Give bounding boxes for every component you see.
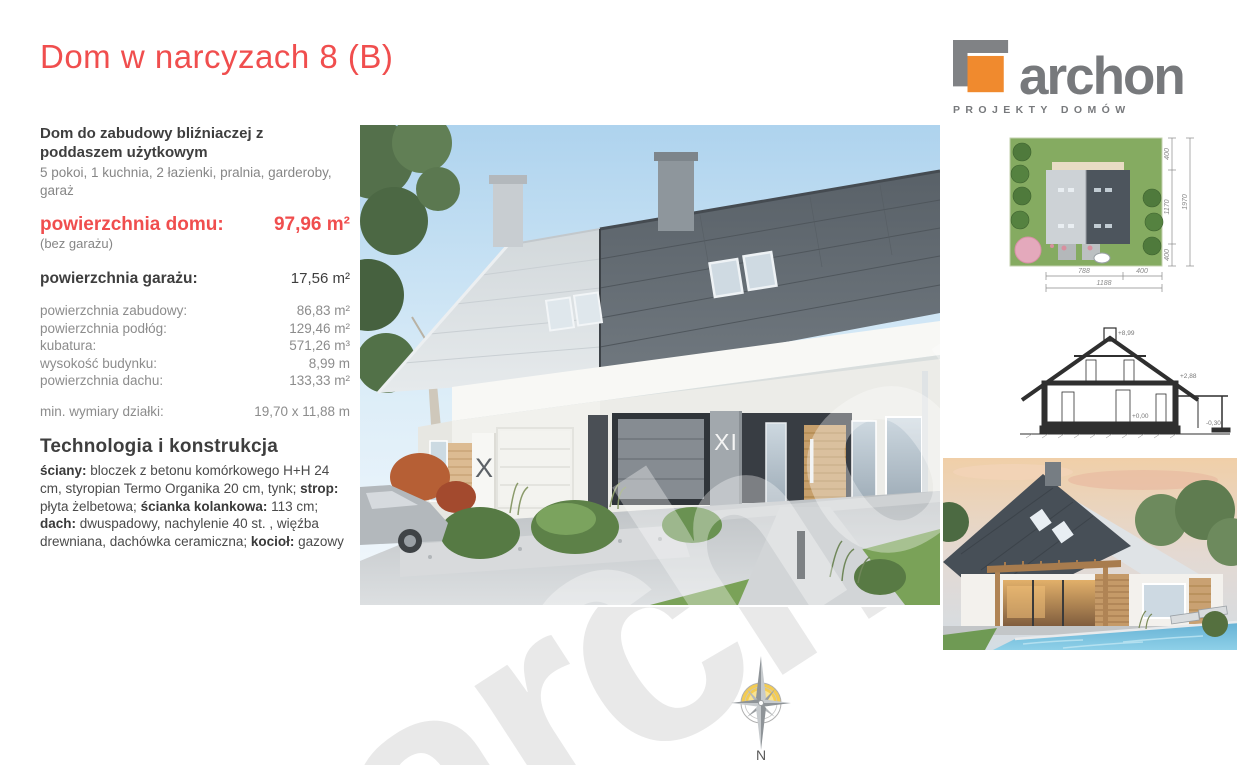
plot-size-value: 19,70 x 11,88 m bbox=[254, 404, 350, 419]
spec-label: powierzchnia zabudowy: bbox=[40, 302, 187, 320]
brand-name: archon bbox=[1019, 55, 1184, 98]
cross-section-drawing: +8,99 +2,88 +0,00 -0,30 bbox=[1016, 326, 1235, 454]
watermark-text: archon bbox=[340, 607, 932, 765]
garage-area-value: 17,56 m² bbox=[291, 270, 350, 287]
rooms-list: 5 pokoi, 1 kuchnia, 2 łazienki, pralnia,… bbox=[40, 164, 350, 199]
front-elevation-svg: X XI bbox=[360, 125, 940, 605]
house-area-row: powierzchnia domu: 97,96 m² bbox=[40, 214, 350, 236]
spec-value: 8,99 m bbox=[309, 355, 350, 373]
spec-value: 133,33 m² bbox=[289, 372, 350, 390]
svg-text:1970: 1970 bbox=[1182, 194, 1189, 210]
plan-roof-left bbox=[1046, 170, 1086, 244]
svg-text:1170: 1170 bbox=[1164, 199, 1171, 214]
rear-view-svg bbox=[943, 458, 1237, 650]
cross-section-svg: +8,99 +2,88 +0,00 -0,30 bbox=[1016, 326, 1235, 454]
spec-row: powierzchnia dachu: 133,33 m² bbox=[40, 372, 350, 390]
compass-svg: N bbox=[725, 656, 797, 762]
chimney-left bbox=[489, 175, 527, 247]
plot-size-row: min. wymiary działki: 19,70 x 11,88 m bbox=[40, 404, 350, 419]
photo-chimney bbox=[1045, 462, 1061, 486]
compass-rose: N bbox=[725, 656, 797, 762]
chimney-right bbox=[654, 152, 698, 231]
garage-area-label: powierzchnia garażu: bbox=[40, 270, 198, 288]
plot-size-label: min. wymiary działki: bbox=[40, 404, 164, 419]
svg-text:400: 400 bbox=[1164, 148, 1171, 160]
project-description: Dom do zabudowy bliźniaczej z poddaszem … bbox=[40, 124, 350, 162]
spec-value: 86,83 m² bbox=[297, 302, 350, 320]
rear-view-photo bbox=[943, 458, 1237, 650]
compass-north-label: N bbox=[756, 747, 766, 762]
svg-text:1188: 1188 bbox=[1096, 280, 1111, 287]
spec-row: powierzchnia zabudowy: 86,83 m² bbox=[40, 302, 350, 320]
spec-value: 129,46 m² bbox=[289, 320, 350, 338]
house-number-left: X bbox=[475, 453, 493, 483]
svg-text:400: 400 bbox=[1136, 268, 1148, 275]
brand-subtitle: PROJEKTY DOMÓW bbox=[953, 104, 1207, 116]
plan-pink-tree bbox=[1015, 237, 1041, 263]
front-elevation-render: X XI bbox=[360, 125, 940, 605]
svg-text:+0,00: +0,00 bbox=[1132, 413, 1149, 420]
spec-label: powierzchnia dachu: bbox=[40, 372, 163, 390]
spec-row: kubatura: 571,26 m³ bbox=[40, 337, 350, 355]
spec-list: powierzchnia zabudowy: 86,83 m² powierzc… bbox=[40, 302, 350, 390]
spec-value: 571,26 m³ bbox=[289, 337, 350, 355]
svg-text:400: 400 bbox=[1164, 249, 1171, 261]
svg-text:788: 788 bbox=[1078, 268, 1090, 275]
plan-drive bbox=[1058, 244, 1076, 260]
garage-area-row: powierzchnia garażu: 17,56 m² bbox=[40, 270, 350, 288]
svg-text:+2,88: +2,88 bbox=[1180, 373, 1197, 380]
compass-star bbox=[731, 656, 791, 750]
site-plan: 400 1170 400 1970 788 400 1188 bbox=[1006, 136, 1235, 298]
spec-row: wysokość budynku: 8,99 m bbox=[40, 355, 350, 373]
plan-car bbox=[1094, 253, 1110, 263]
spec-row: powierzchnia podłóg: 129,46 m² bbox=[40, 320, 350, 338]
svg-text:-0,30: -0,30 bbox=[1206, 420, 1221, 427]
photo-window bbox=[1143, 584, 1185, 618]
project-summary: Dom do zabudowy bliźniaczej z poddaszem … bbox=[40, 124, 350, 551]
brand-logo: archon PROJEKTY DOMÓW bbox=[953, 40, 1207, 116]
house-area-label: powierzchnia domu: bbox=[40, 214, 224, 236]
watermark: archon bbox=[340, 607, 932, 765]
page-title: Dom w narcyzach 8 (B) bbox=[40, 38, 393, 76]
plan-roof-right bbox=[1086, 170, 1130, 244]
photo-slat-wall bbox=[1095, 574, 1129, 628]
technology-heading: Technologia i konstrukcja bbox=[40, 436, 350, 458]
house-area-note: (bez garażu) bbox=[40, 236, 350, 251]
svg-text:+8,99: +8,99 bbox=[1118, 330, 1135, 337]
house-area-value: 97,96 m² bbox=[274, 214, 350, 236]
spec-label: powierzchnia podłóg: bbox=[40, 320, 167, 338]
technology-paragraph: ściany: bloczek z betonu komórkowego H+H… bbox=[40, 462, 350, 551]
spec-label: kubatura: bbox=[40, 337, 96, 355]
archon-logo-icon bbox=[953, 40, 1011, 98]
spec-label: wysokość budynku: bbox=[40, 355, 157, 373]
site-plan-svg: 400 1170 400 1970 788 400 1188 bbox=[1006, 136, 1235, 298]
